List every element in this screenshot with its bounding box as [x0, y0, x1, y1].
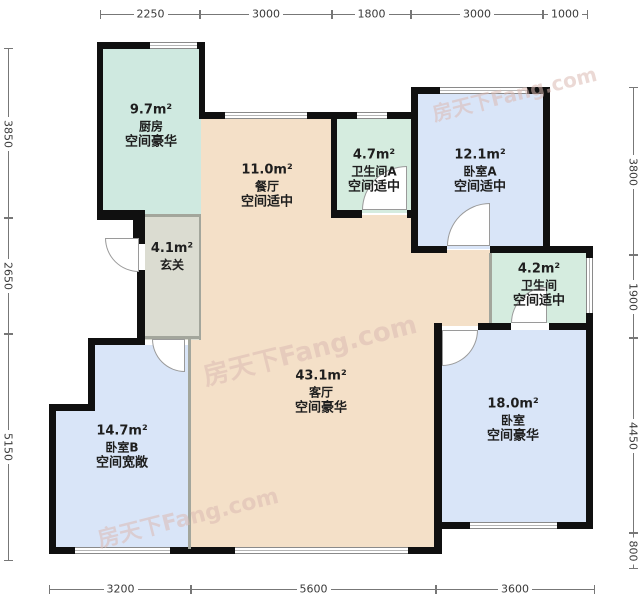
wall-segment — [331, 115, 337, 217]
dimension-right-3: 4450 — [629, 337, 638, 534]
dimension-label: 3000 — [460, 8, 494, 21]
dimension-label: 3200 — [104, 583, 138, 596]
wall-segment — [170, 547, 235, 554]
dimension-top-2: 3000 — [199, 10, 333, 19]
partition-kitchen-hallway — [145, 214, 201, 217]
partition-bedroomb-living — [188, 338, 191, 549]
wall-segment — [434, 323, 442, 554]
wall-segment — [549, 323, 593, 330]
wall-segment — [88, 338, 145, 345]
wall-segment — [557, 522, 593, 529]
room-name-text: 玄关 — [151, 258, 193, 274]
room-label-kitchen: 9.7m² 厨房 空间豪华 — [125, 102, 177, 151]
dimension-right-2: 1900 — [629, 254, 638, 339]
dimension-bottom-2: 5600 — [190, 585, 437, 594]
room-tag-text: 空间适中 — [241, 195, 293, 212]
room-hallway-area — [145, 215, 201, 340]
room-label-bedroom: 18.0m² 卧室 空间豪华 — [487, 396, 539, 445]
room-label-dining: 11.0m² 餐厅 空间适中 — [241, 162, 293, 211]
room-label-bath: 4.2m² 卫生间 空间适中 — [513, 261, 565, 310]
wall-segment — [331, 210, 362, 218]
dimension-label: 1800 — [355, 8, 389, 21]
room-area-text: 43.1m² — [295, 368, 347, 385]
room-label-living: 43.1m² 客厅 空间豪华 — [295, 368, 347, 417]
door-arc-entry — [105, 238, 139, 272]
dimension-label: 5600 — [297, 583, 331, 596]
partition-hallway-living — [199, 215, 201, 340]
room-area-text: 11.0m² — [241, 162, 293, 179]
room-name-text: 卧室B — [96, 440, 148, 456]
wall-segment — [407, 210, 417, 218]
dimension-left-2: 2650 — [4, 217, 13, 335]
wall-segment — [543, 87, 550, 253]
room-area-text: 18.0m² — [487, 396, 539, 413]
window-dining — [225, 112, 307, 119]
room-label-bedroom-b: 14.7m² 卧室B 空间宽敞 — [96, 423, 148, 472]
dimension-label: 800 — [627, 537, 640, 564]
room-tag-text: 空间宽敞 — [96, 456, 148, 473]
dimension-top-1: 2250 — [100, 10, 201, 19]
room-area-text: 12.1m² — [454, 147, 506, 164]
window-bath — [586, 258, 593, 313]
wall-segment — [49, 404, 56, 554]
room-area-text: 14.7m² — [96, 423, 148, 440]
room-tag-text: 空间适中 — [513, 294, 565, 311]
dimension-left-1: 3850 — [4, 48, 13, 219]
dimension-label: 2650 — [2, 259, 15, 293]
wall-segment — [478, 323, 511, 330]
window-kitchen — [150, 42, 197, 49]
window-bath-a — [357, 112, 387, 119]
dimension-top-4: 3000 — [410, 10, 544, 19]
dimension-label: 3850 — [2, 117, 15, 151]
dimension-label: 1000 — [548, 8, 582, 21]
room-name-text: 卧室 — [487, 413, 539, 429]
dimension-top-5: 1000 — [542, 10, 588, 19]
wall-segment — [490, 246, 593, 253]
room-label-bedroom-a: 12.1m² 卧室A 空间适中 — [454, 147, 506, 196]
partition-corridor-bath — [489, 253, 492, 323]
room-label-hallway: 4.1m² 玄关 — [151, 241, 193, 273]
dimension-top-3: 1800 — [331, 10, 412, 19]
dimension-right-1: 3800 — [629, 87, 638, 256]
dimension-label: 5150 — [2, 430, 15, 464]
dimension-label: 2250 — [134, 8, 168, 21]
room-area-text: 4.1m² — [151, 241, 193, 258]
wall-segment — [411, 87, 418, 253]
window-living — [235, 547, 408, 554]
wall-segment — [408, 547, 442, 554]
room-area-text: 9.7m² — [125, 102, 177, 119]
room-name-text: 卫生间A — [348, 164, 400, 180]
wall-segment — [137, 270, 145, 342]
dimension-label: 3800 — [627, 155, 640, 189]
dimension-label: 3000 — [249, 8, 283, 21]
room-tag-text: 空间适中 — [348, 180, 400, 197]
room-area-text: 4.7m² — [348, 147, 400, 164]
dimension-label: 4450 — [627, 419, 640, 453]
wall-segment — [88, 338, 95, 411]
dimension-right-4: 800 — [629, 532, 638, 569]
dimension-label: 1900 — [627, 280, 640, 314]
dimension-bottom-3: 3600 — [435, 585, 595, 594]
room-name-text: 客厅 — [295, 385, 347, 401]
room-label-bath-a: 4.7m² 卫生间A 空间适中 — [348, 147, 400, 196]
room-name-text: 厨房 — [125, 119, 177, 135]
room-name-text: 卧室A — [454, 164, 506, 180]
dimension-bottom-1: 3200 — [49, 585, 192, 594]
room-corridor-area — [408, 250, 492, 326]
room-tag-text: 空间豪华 — [125, 135, 177, 152]
room-tag-text: 空间适中 — [454, 180, 506, 197]
window-bedroom-b — [75, 547, 170, 554]
floor-plan: 9.7m² 厨房 空间豪华 11.0m² 餐厅 空间适中 4.7m² 卫生间A … — [0, 0, 642, 600]
dimension-label: 3600 — [498, 583, 532, 596]
wall-segment — [199, 42, 205, 119]
room-area-text: 4.2m² — [513, 261, 565, 278]
window-bedroom-a — [440, 87, 527, 94]
dimension-left-3: 5150 — [4, 333, 13, 561]
room-tag-text: 空间豪华 — [295, 401, 347, 418]
wall-segment — [411, 246, 447, 253]
room-name-text: 餐厅 — [241, 179, 293, 195]
wall-segment — [442, 522, 470, 529]
room-name-text: 卫生间 — [513, 278, 565, 294]
room-tag-text: 空间豪华 — [487, 429, 539, 446]
wall-segment — [97, 42, 103, 214]
window-bedroom — [470, 522, 557, 529]
